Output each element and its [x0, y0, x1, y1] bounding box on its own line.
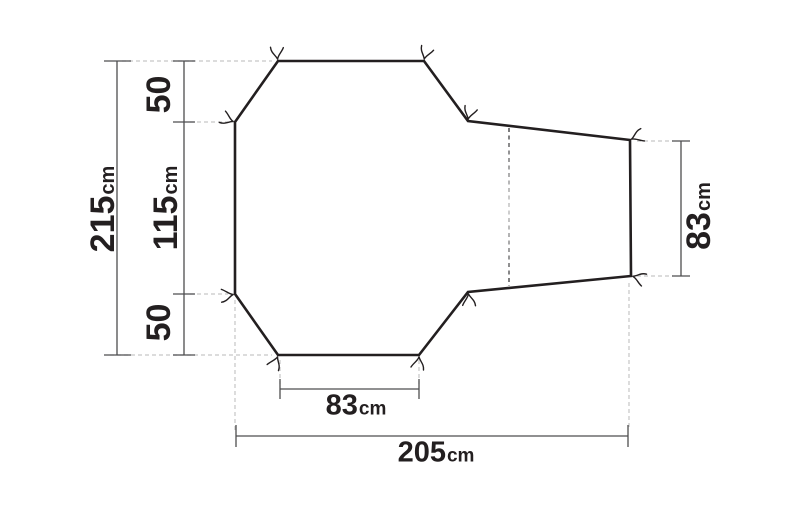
dimension-value: 83: [682, 212, 716, 250]
guyline-tie-icon: [411, 357, 424, 370]
dimension-value: 83: [326, 392, 358, 421]
dimension-value: 205: [398, 439, 446, 468]
dimension-unit: cm: [447, 447, 474, 466]
dimension-unit: cm: [694, 182, 714, 211]
guyline-tie-icon: [219, 110, 235, 125]
tent-footprint-diagram: [0, 0, 800, 508]
dimension-unit: cm: [359, 400, 386, 419]
dimension-label-bottom-inner-width: 83cm: [326, 392, 387, 421]
dimension-label-right-height: 83cm: [682, 182, 716, 250]
guyline-tie-icon: [270, 45, 285, 60]
dimension-unit: cm: [161, 166, 181, 195]
tie-icons: [218, 45, 647, 371]
dimension-value: 50: [142, 76, 176, 114]
dimension-label-left-middle-segment: 115cm: [149, 166, 183, 251]
dimension-value: 115: [149, 196, 183, 251]
diagram-canvas: 215cm 50 115cm 50 83cm 83cm 205cm: [0, 0, 800, 508]
extension-lines: [110, 61, 673, 430]
dimension-value: 50: [142, 304, 176, 342]
dimension-label-left-top-segment: 50: [142, 75, 176, 114]
dimension-label-left-total: 215cm: [86, 166, 120, 253]
dimension-value: 215: [86, 196, 120, 253]
dimension-label-bottom-total-width: 205cm: [398, 439, 475, 468]
guyline-tie-icon: [420, 46, 434, 61]
dimension-label-left-bottom-segment: 50: [142, 303, 176, 342]
dimension-lines: [104, 61, 690, 447]
dimension-unit: cm: [98, 166, 118, 195]
guyline-tie-icon: [629, 129, 647, 146]
tent-footprint-outline: [235, 61, 631, 355]
guyline-tie-icon: [632, 272, 647, 287]
